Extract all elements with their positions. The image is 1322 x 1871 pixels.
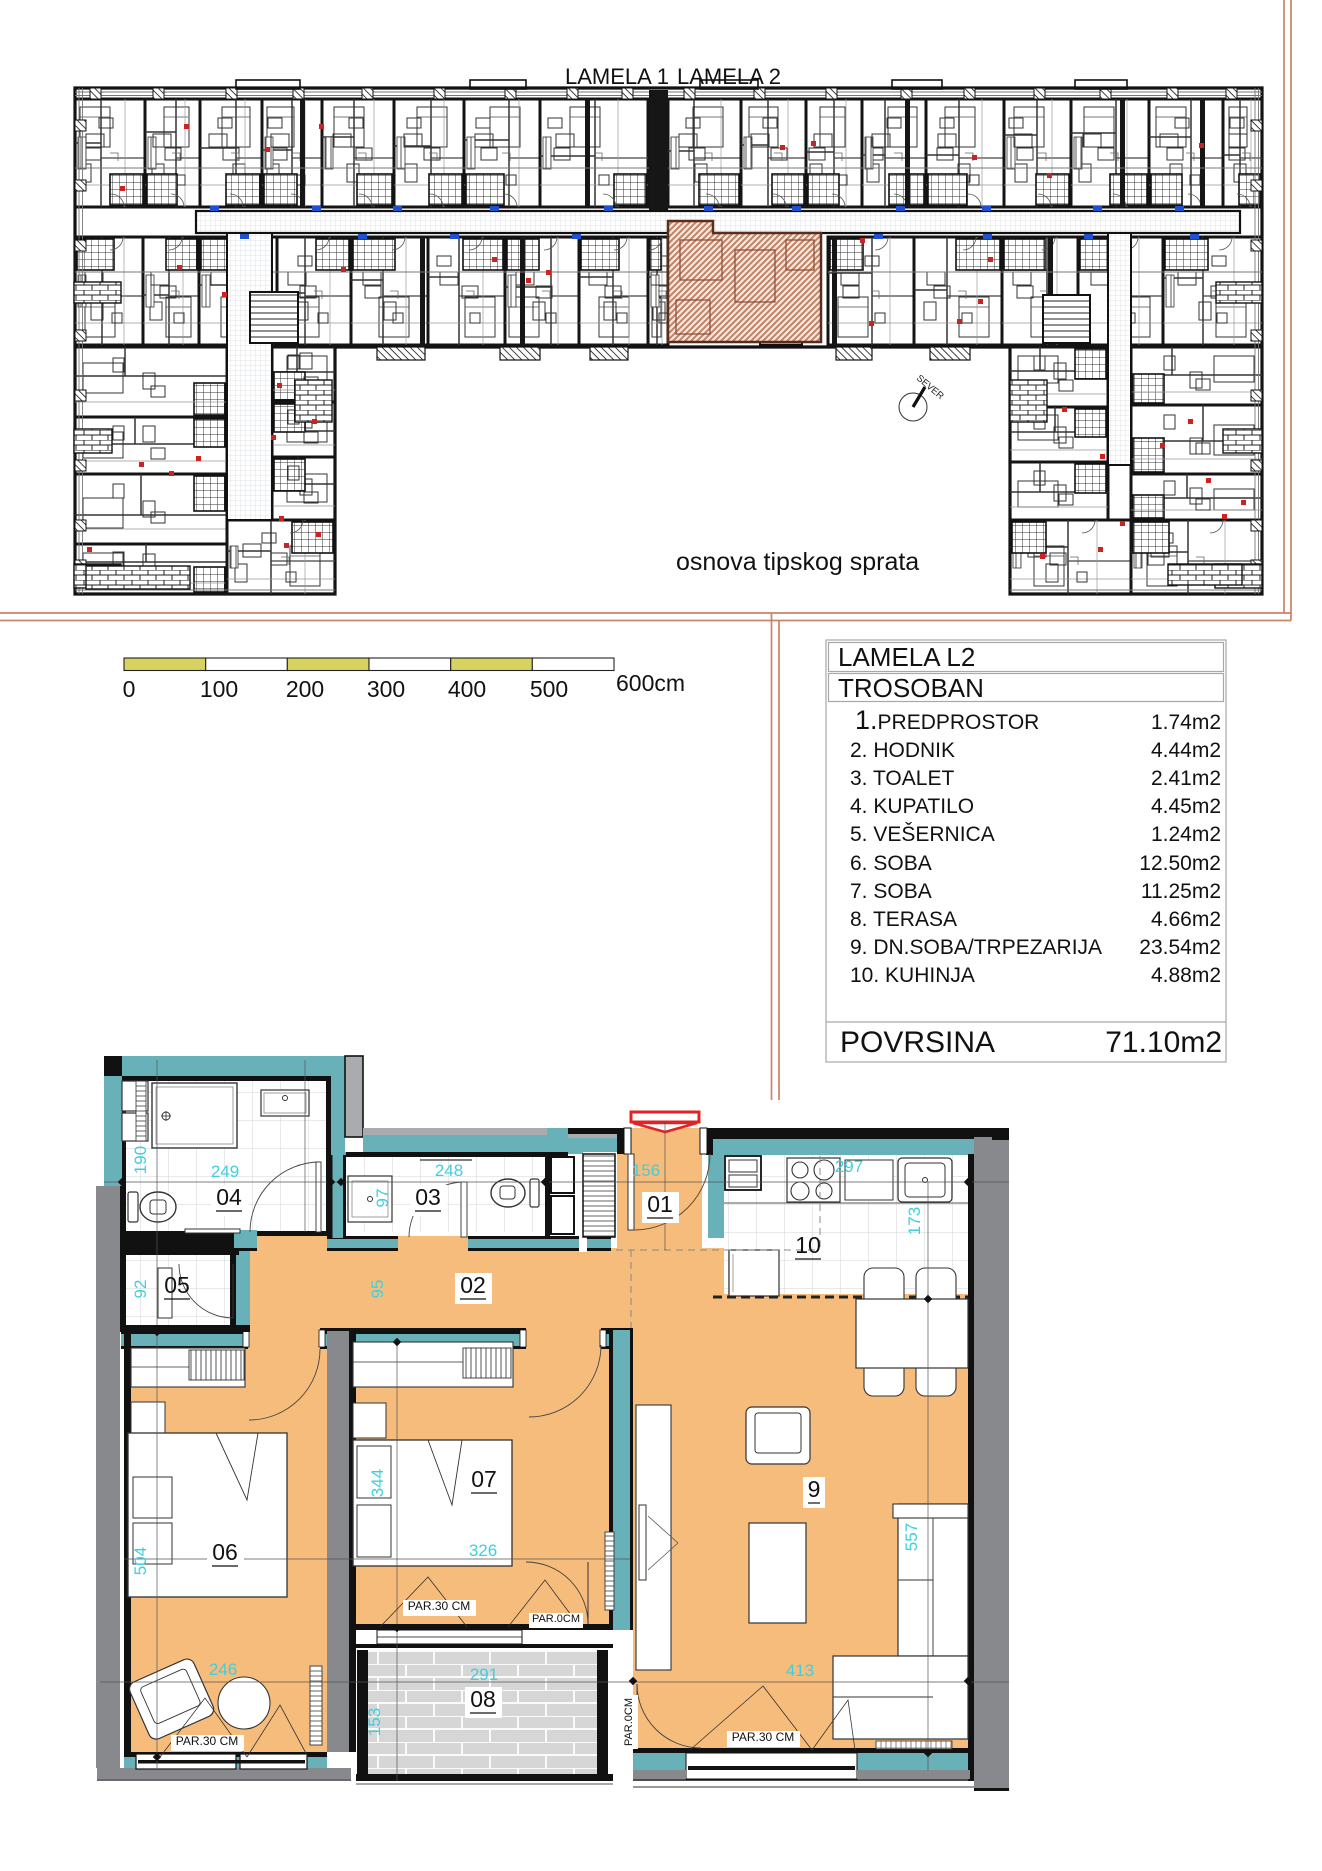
svg-text:PAR.30 CM: PAR.30 CM — [408, 1599, 470, 1613]
svg-text:4. KUPATILO: 4. KUPATILO — [850, 795, 974, 818]
svg-text:156: 156 — [632, 1161, 660, 1180]
svg-text:TROSOBAN: TROSOBAN — [838, 673, 984, 703]
svg-text:344: 344 — [368, 1469, 387, 1497]
svg-text:LAMELA L2: LAMELA L2 — [838, 642, 975, 672]
svg-text:248: 248 — [435, 1161, 463, 1180]
svg-text:03: 03 — [415, 1184, 441, 1210]
svg-text:557: 557 — [902, 1523, 921, 1551]
svg-text:07: 07 — [471, 1466, 497, 1492]
svg-text:4.66m2: 4.66m2 — [1151, 908, 1221, 931]
svg-text:4.88m2: 4.88m2 — [1151, 964, 1221, 987]
svg-text:153: 153 — [365, 1708, 384, 1736]
svg-text:100: 100 — [200, 676, 238, 702]
svg-text:7. SOBA: 7. SOBA — [850, 880, 932, 903]
svg-text:97: 97 — [373, 1189, 392, 1208]
svg-text:9. DN.SOBA/TRPEZARIJA: 9. DN.SOBA/TRPEZARIJA — [850, 936, 1102, 959]
svg-text:LAMELA 1: LAMELA 1 — [565, 64, 669, 89]
svg-text:8. TERASA: 8. TERASA — [850, 908, 957, 931]
svg-text:173: 173 — [905, 1207, 924, 1235]
svg-text:6. SOBA: 6. SOBA — [850, 852, 932, 875]
svg-text:04: 04 — [216, 1184, 242, 1210]
svg-text:LAMELA 2: LAMELA 2 — [677, 64, 781, 89]
svg-text:23.54m2: 23.54m2 — [1139, 936, 1221, 959]
svg-text:02: 02 — [460, 1272, 486, 1298]
svg-text:2. HODNIK: 2. HODNIK — [850, 739, 955, 762]
svg-text:600cm: 600cm — [616, 670, 685, 696]
svg-text:05: 05 — [164, 1272, 190, 1298]
svg-text:400: 400 — [448, 676, 486, 702]
svg-text:4.45m2: 4.45m2 — [1151, 795, 1221, 818]
svg-text:291: 291 — [470, 1665, 498, 1684]
svg-text:10: 10 — [795, 1232, 821, 1258]
svg-text:200: 200 — [286, 676, 324, 702]
svg-text:300: 300 — [367, 676, 405, 702]
svg-text:06: 06 — [212, 1539, 238, 1565]
svg-text:12.50m2: 12.50m2 — [1139, 852, 1221, 875]
svg-text:246: 246 — [209, 1660, 237, 1679]
svg-text:PAR.0CM: PAR.0CM — [623, 1698, 635, 1746]
svg-text:95: 95 — [368, 1280, 387, 1299]
svg-text:190: 190 — [131, 1146, 150, 1174]
svg-text:92: 92 — [131, 1280, 150, 1299]
svg-text:1.24m2: 1.24m2 — [1151, 823, 1221, 846]
svg-text:5. VEŠERNICA: 5. VEŠERNICA — [850, 823, 995, 846]
svg-text:1.74m2: 1.74m2 — [1151, 711, 1221, 734]
svg-text:POVRSINA: POVRSINA — [840, 1026, 995, 1059]
svg-text:01: 01 — [647, 1191, 673, 1217]
svg-text:297: 297 — [835, 1157, 863, 1176]
svg-text:PAR.30 CM: PAR.30 CM — [176, 1734, 238, 1748]
svg-text:504: 504 — [131, 1547, 150, 1575]
svg-text:413: 413 — [786, 1661, 814, 1680]
svg-text:500: 500 — [530, 676, 568, 702]
svg-text:PAR.0CM: PAR.0CM — [532, 1613, 580, 1625]
svg-text:326: 326 — [469, 1541, 497, 1560]
svg-text:10. KUHINJA: 10. KUHINJA — [850, 964, 975, 987]
svg-text:3. TOALET: 3. TOALET — [850, 767, 954, 790]
svg-text:osnova tipskog sprata: osnova tipskog sprata — [676, 548, 919, 576]
svg-text:11.25m2: 11.25m2 — [1141, 880, 1221, 903]
svg-text:4.44m2: 4.44m2 — [1151, 739, 1221, 762]
svg-text:2.41m2: 2.41m2 — [1151, 767, 1221, 790]
svg-text:71.10m2: 71.10m2 — [1105, 1026, 1222, 1059]
svg-text:9: 9 — [808, 1476, 821, 1502]
svg-text:249: 249 — [211, 1162, 239, 1181]
svg-text:0: 0 — [123, 676, 136, 702]
svg-text:08: 08 — [470, 1686, 496, 1712]
svg-text:PAR.30 CM: PAR.30 CM — [732, 1730, 794, 1744]
